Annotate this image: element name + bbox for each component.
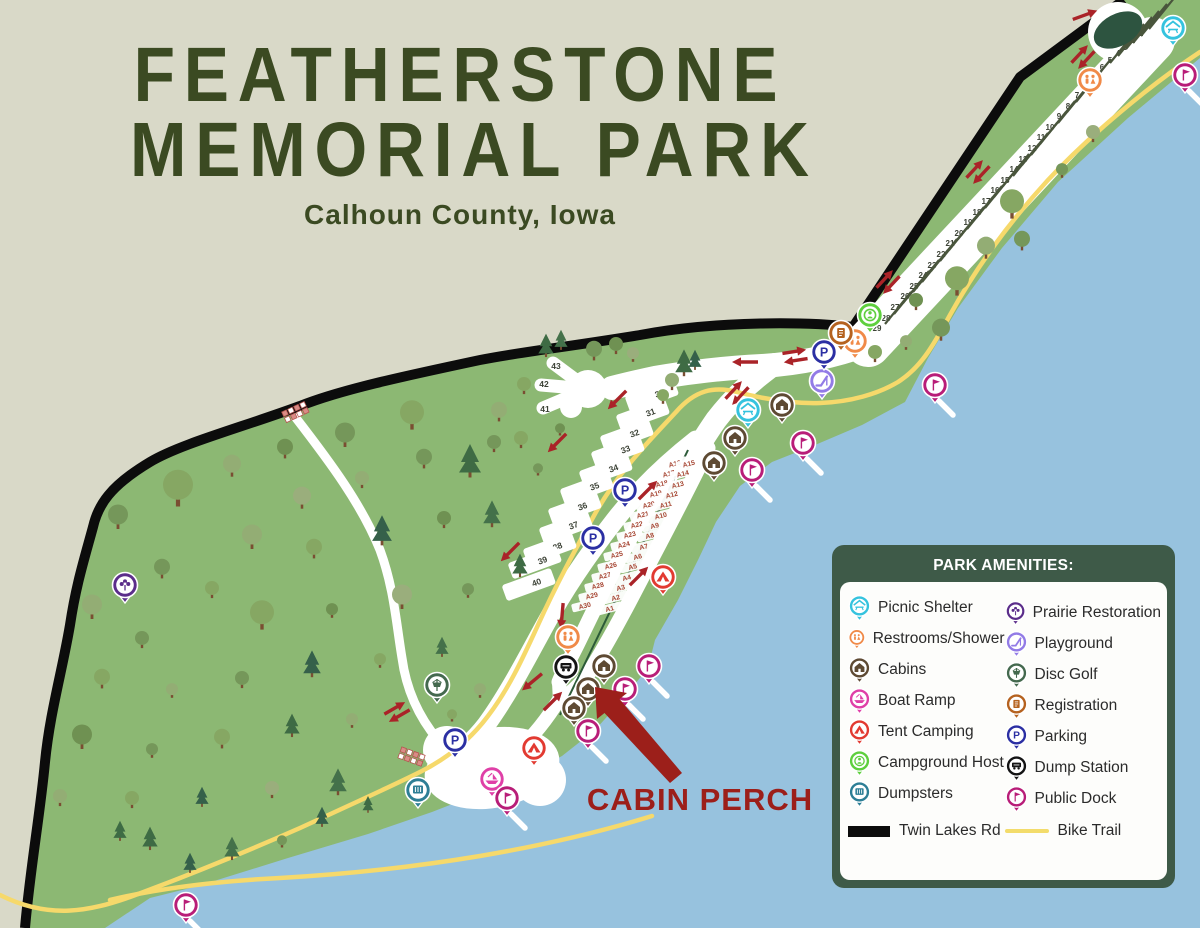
legend-item-disc-golf: Disc Golf: [1005, 659, 1162, 690]
legend-item-label: Parking: [1035, 728, 1088, 746]
legend-item-label: Prairie Restoration: [1033, 604, 1161, 622]
legend-item-label: Boat Ramp: [878, 692, 956, 710]
legend-line-row: Twin Lakes Rd Bike Trail: [848, 822, 1161, 840]
legend-item-parking: PParking: [1005, 721, 1162, 752]
legend-item-label: Registration: [1035, 697, 1118, 715]
twin-lakes-road-swatch: [848, 826, 890, 837]
playground-icon: [1005, 630, 1028, 658]
legend-item-label: Dump Station: [1035, 759, 1129, 777]
legend-item-label: Campground Host: [878, 754, 1004, 772]
legend-item-label: Restrooms/Shower: [873, 630, 1005, 648]
campsite-42: 42: [539, 379, 549, 389]
svg-text:P: P: [621, 483, 629, 497]
prairie-restoration-icon: [1005, 599, 1026, 627]
legend-item-prairie-restoration: Prairie Restoration: [1005, 597, 1162, 628]
public-dock-icon: [1005, 785, 1028, 813]
disc-golf-icon: [1005, 661, 1028, 689]
pine-tree: [538, 334, 553, 357]
legend-item-dumpsters: Dumpsters: [848, 778, 1005, 809]
dump-station-icon: [1005, 754, 1028, 782]
svg-text:P: P: [820, 345, 828, 359]
legend-title: PARK AMENITIES:: [832, 545, 1175, 575]
bike-trail-swatch: [1005, 829, 1049, 834]
pine-tree: [554, 330, 567, 350]
bike-trail-label: Bike Trail: [1058, 822, 1122, 840]
legend-item-playground: Playground: [1005, 628, 1162, 659]
legend-item-label: Picnic Shelter: [878, 599, 973, 617]
legend-column-right: Prairie Restoration Playground Disc Golf…: [1005, 592, 1162, 814]
legend-item-label: Disc Golf: [1035, 666, 1098, 684]
legend-item-dump-station: Dump Station: [1005, 752, 1162, 783]
legend-item-label: Playground: [1035, 635, 1113, 653]
legend-item-label: Cabins: [878, 661, 926, 679]
campground-host-icon: [848, 749, 871, 777]
boat-ramp-icon: [848, 687, 871, 715]
tent-camping-icon: [848, 718, 871, 746]
restrooms-icon: [848, 625, 866, 653]
registration-icon: [1005, 692, 1028, 720]
legend-item-cabins: Cabins: [848, 654, 1005, 685]
legend-item-tent-camping: Tent Camping: [848, 716, 1005, 747]
dumpsters-icon: [848, 780, 871, 808]
legend-trail-entry: Bike Trail: [1005, 822, 1162, 840]
legend-card: Picnic Shelter Restrooms/Shower Cabins B…: [840, 582, 1167, 880]
park-map-poster: 1 2 3 4 5 6 7 8 9 10 11 12 13 14 15 16 1…: [0, 0, 1200, 928]
svg-text:P: P: [589, 531, 597, 545]
legend-item-label: Tent Camping: [878, 723, 974, 741]
legend-panel: PARK AMENITIES: Picnic Shelter Restrooms…: [832, 545, 1175, 888]
cabin-perch-label: CABIN PERCH: [587, 782, 813, 817]
svg-text:P: P: [451, 733, 459, 747]
legend-item-campground-host: Campground Host: [848, 747, 1005, 778]
twin-lakes-road-label: Twin Lakes Rd: [899, 822, 1001, 840]
legend-item-public-dock: Public Dock: [1005, 783, 1162, 814]
svg-text:P: P: [1013, 730, 1020, 741]
cabins-icon: [848, 656, 871, 684]
campsite-43: 43: [551, 361, 561, 371]
legend-item-picnic-shelter: Picnic Shelter: [848, 592, 1005, 623]
legend-item-label: Dumpsters: [878, 785, 953, 803]
legend-item-registration: Registration: [1005, 690, 1162, 721]
legend-item-restrooms: Restrooms/Shower: [848, 623, 1005, 654]
picnic-shelter-icon: [848, 594, 871, 622]
legend-road-entry: Twin Lakes Rd: [848, 822, 1005, 840]
legend-item-label: Public Dock: [1035, 790, 1117, 808]
legend-column-left: Picnic Shelter Restrooms/Shower Cabins B…: [848, 592, 1005, 814]
legend-item-boat-ramp: Boat Ramp: [848, 685, 1005, 716]
parking-icon: P: [1005, 723, 1028, 751]
campsite-41: 41: [540, 404, 550, 414]
